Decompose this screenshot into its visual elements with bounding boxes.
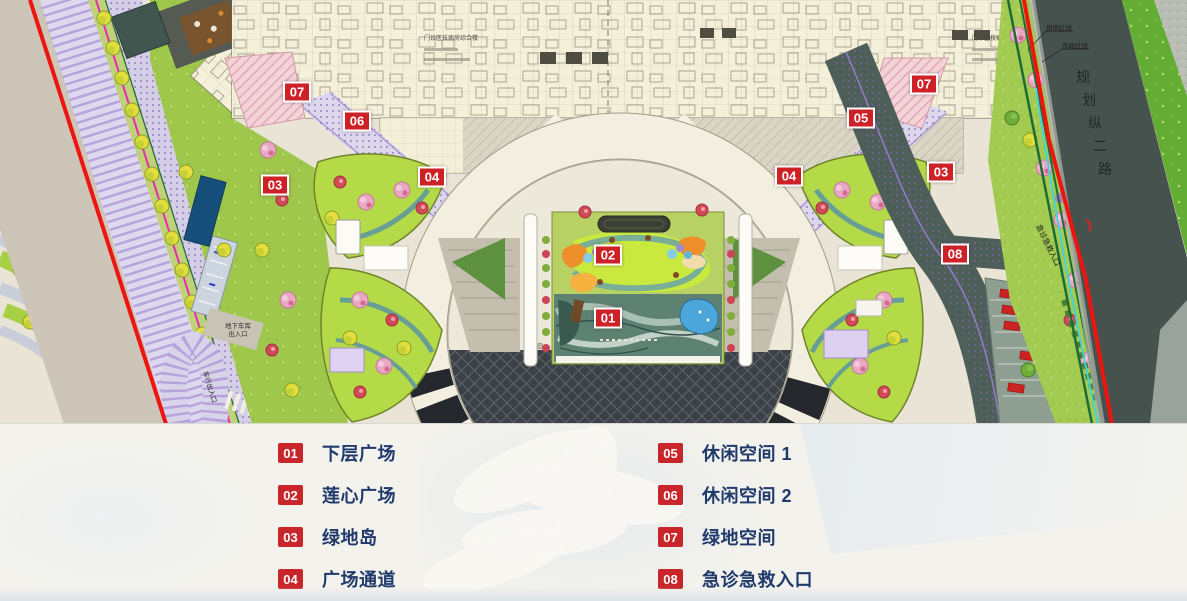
legend-chip-08: 08 <box>658 569 683 589</box>
master-plan-map: 地下车库 出入口 车行出入口 物流入口 <box>0 0 1187 424</box>
legend-row-05: 05 休闲空间 1 <box>658 440 792 466</box>
site-plan-page: 地下车库 出入口 车行出入口 物流入口 <box>0 0 1187 601</box>
legend-chip-02: 02 <box>278 485 303 505</box>
legend-row-07: 07 绿地空间 <box>658 524 776 550</box>
legend-label-07: 绿地空间 <box>702 524 776 550</box>
watermark-wedge <box>800 424 1187 554</box>
courtyard <box>524 204 752 366</box>
label-box <box>364 246 408 270</box>
sunken-plaza <box>554 294 722 363</box>
road-name-char: 纵 <box>1088 115 1102 131</box>
kiosk <box>336 220 360 254</box>
watermark-left <box>0 434 260 601</box>
road-name-char: 规 <box>1076 69 1090 85</box>
legend-chip-03: 03 <box>278 527 303 547</box>
map-illustration: 地下车库 出入口 车行出入口 物流入口 <box>0 0 1187 424</box>
road-name-char: 二 <box>1093 138 1107 154</box>
legend-row-06: 06 休闲空间 2 <box>658 482 792 508</box>
legend-label-03: 绿地岛 <box>322 524 378 550</box>
lotus-plaza <box>562 231 710 292</box>
legend-label-05: 休闲空间 1 <box>702 440 792 466</box>
pond <box>680 299 718 334</box>
legend-chip-01: 01 <box>278 443 303 463</box>
legend-label-02: 莲心广场 <box>322 482 396 508</box>
legend-row-01: 01 下层广场 <box>278 440 396 466</box>
legend-row-03: 03 绿地岛 <box>278 524 378 550</box>
legend-label-06: 休闲空间 2 <box>702 482 792 508</box>
courtyard-canopy <box>598 216 670 232</box>
legend-label-01: 下层广场 <box>322 440 396 466</box>
legend-chip-07: 07 <box>658 527 683 547</box>
legend-chip-04: 04 <box>278 569 303 589</box>
legend-panel: 01 下层广场 02 莲心广场 03 绿地岛 04 广场通道 05 休闲空间 1… <box>0 424 1187 601</box>
road-name-char: 划 <box>1082 92 1096 108</box>
pavilion <box>824 330 868 358</box>
legend-row-02: 02 莲心广场 <box>278 482 396 508</box>
svg-text:门诊医技病房综合楼: 门诊医技病房综合楼 <box>424 34 478 42</box>
road-name-char: 路 <box>1098 161 1112 177</box>
legend-chip-05: 05 <box>658 443 683 463</box>
label-box <box>838 246 882 270</box>
garage-entrance-label-line2: 出入口 <box>228 329 248 338</box>
bottom-fade-band <box>0 587 1187 601</box>
pavilion <box>330 348 364 372</box>
garage-entrance-label-line1: 地下车库 <box>225 321 252 330</box>
legend-chip-06: 06 <box>658 485 683 505</box>
